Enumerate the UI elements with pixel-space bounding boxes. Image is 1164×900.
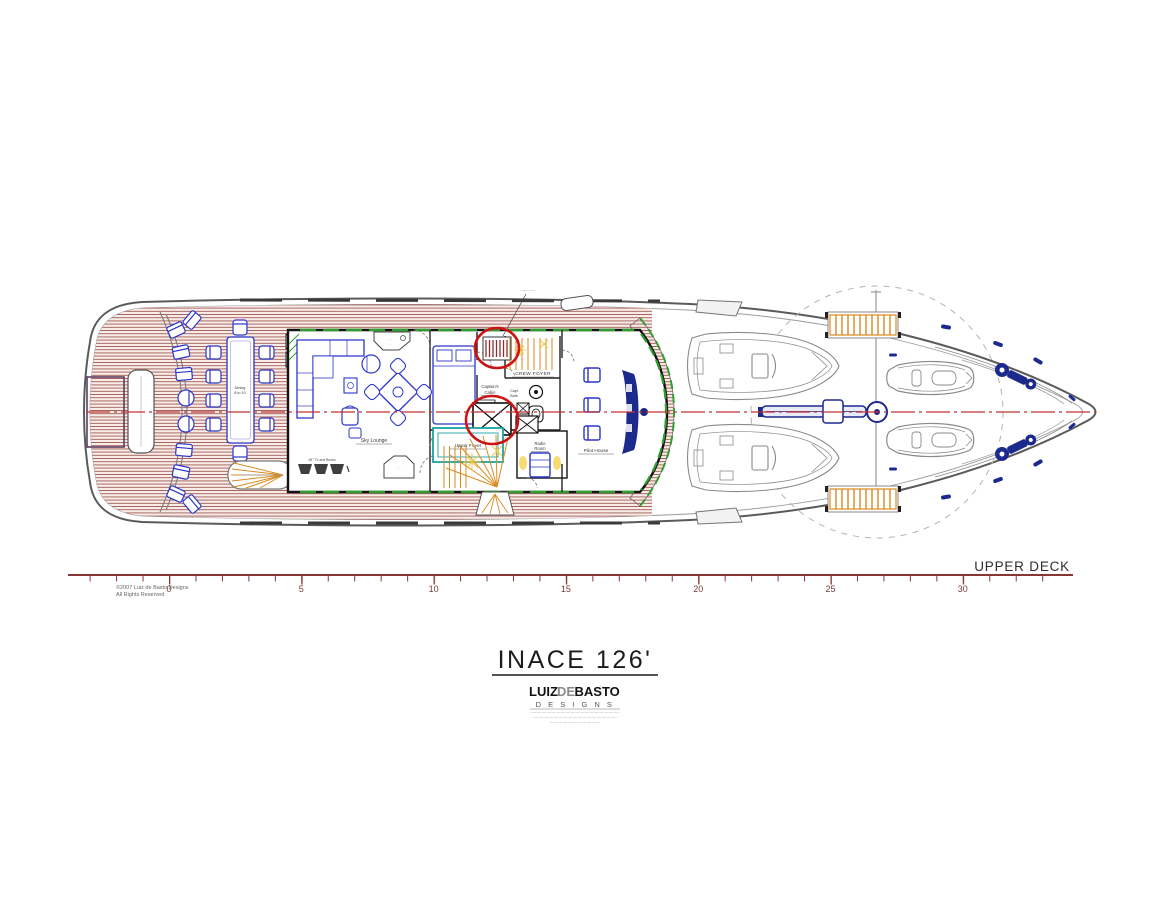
logo-basto: BASTO [575,684,620,699]
dining-label2: 8 to 10 [234,391,246,395]
deck-name-label: UPPER DECK [974,559,1070,574]
callout-label-illegible: ············· [520,289,535,293]
jet-ski-port [887,361,974,394]
crew-foyer-label: CREW FOYER [515,371,551,377]
capt-bath-label2: Bath [510,394,517,398]
bar-label: ···· [388,337,392,341]
ruler-label-15: 15 [561,584,571,594]
deck-plan-canvas: Dining 8 to 10 [0,0,1164,900]
corner-label: ···· [397,466,401,470]
scale-ruler: 0 5 10 15 20 25 30 [68,575,1073,594]
dining-label: Dining [235,386,246,390]
ruler-label-25: 25 [825,584,835,594]
logo-fineprint-2: ········································… [533,716,616,720]
ruler-label-5: 5 [299,584,304,594]
deck-hatch-forward-port [825,312,901,338]
radio-room-label2: Room [534,446,546,451]
logo-fineprint-1: ········································… [530,711,620,715]
logo-de: DE [557,684,575,699]
bar-label2: ··· [389,342,392,346]
tv-label: 48" TV and Books [308,458,335,462]
copyright-line2: All Rights Reserved [116,592,164,598]
captains-cabin-label: Captain's [481,384,498,389]
drawing-title: INACE 126' [498,646,653,674]
upper-foyer-label: Upper Foyer [455,443,482,449]
ruler-label-20: 20 [693,584,703,594]
capt-bath-label: Capt [510,389,518,393]
pilot-house-label: Pilot House [584,448,609,454]
side-deck-stair [476,492,514,515]
deck-hatch-forward-starboard [825,486,901,512]
logo-luiz: LUIZ [529,684,558,699]
ruler-label-30: 30 [958,584,968,594]
jet-ski-starboard [887,423,974,456]
sky-lounge-label: Sky Lounge [361,438,388,444]
logo-designs: D E S I G N S [536,700,615,709]
captains-cabin-label2: Cabin [485,390,497,395]
copyright-line1: ©2007 Luiz de Basto Designs [116,584,189,591]
staircase-aft [228,461,292,489]
title-block: INACE 126' LUIZ DE BASTO D E S I G N S ·… [492,646,658,725]
ruler-label-10: 10 [429,584,439,594]
logo-fineprint-3: ········································ [550,721,601,725]
drawing-sheet: Dining 8 to 10 [0,0,1164,900]
